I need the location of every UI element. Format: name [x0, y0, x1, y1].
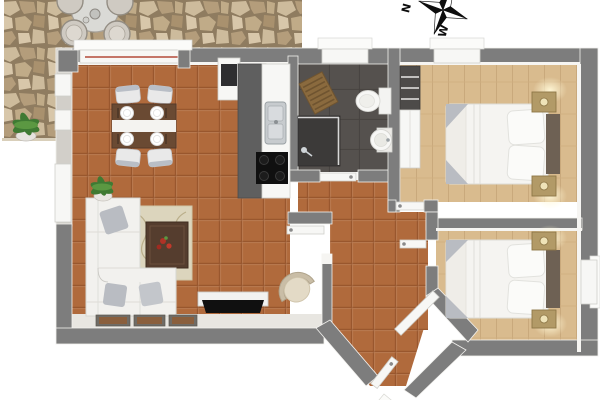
lamp [540, 237, 548, 245]
living-entry-wall [322, 254, 332, 330]
headboard [546, 250, 560, 308]
coffee-table [146, 222, 188, 268]
window-pillar-b [178, 50, 190, 68]
left-window-a [55, 74, 71, 96]
sofa-cushion [103, 283, 128, 308]
table-runner [112, 120, 176, 132]
lamp [540, 182, 548, 190]
bathroom-window-sill [318, 38, 372, 49]
floor-plan-svg: N W [0, 0, 600, 400]
living-bottom-wall [56, 328, 324, 344]
toilet [356, 88, 391, 114]
kitchen-sink [265, 102, 286, 144]
shower [298, 116, 340, 166]
bedroom1-south-wall-b [424, 200, 438, 212]
patio-kettle [90, 9, 100, 19]
right-wall [580, 48, 598, 356]
bedroom2-door [400, 240, 426, 248]
bedroom1-door [396, 202, 424, 210]
compass-north-label: N [399, 2, 414, 14]
bathroom-door [320, 173, 356, 181]
bedroom2-bottom-wall [452, 340, 598, 356]
compass-west-label: W [436, 24, 452, 39]
dining-window-sill [74, 40, 192, 50]
headboard [546, 114, 560, 174]
bedroom1-window [434, 49, 480, 63]
tv-sideboard [198, 292, 268, 313]
floor-plan-image: N W [0, 0, 600, 400]
innerface-right [577, 64, 581, 352]
sink-tap [386, 138, 390, 142]
pillow [507, 109, 545, 145]
bathroom-south-wall-b [358, 170, 392, 182]
cooktop [256, 152, 288, 184]
bedroom1-south-wall-a [388, 200, 396, 212]
faucet [274, 120, 278, 124]
hallway-pocket-floor [298, 180, 390, 214]
bedroom1-window-sill [430, 38, 484, 49]
tv-screen [202, 300, 264, 313]
compass: N W [399, 0, 481, 43]
left-window-b [55, 110, 71, 130]
bed-1 [446, 104, 560, 184]
sofa-cushion [138, 281, 163, 306]
hall-south-wall [288, 212, 332, 224]
corridor-east-wall-a [426, 212, 438, 240]
innerface-bed1-top [400, 62, 580, 65]
living-to-hall-door [287, 226, 324, 234]
wall-end-cap [322, 254, 332, 264]
window-pillar-a [58, 50, 78, 72]
left-wall [56, 224, 72, 344]
floor-mats [96, 315, 197, 326]
lamp [540, 315, 548, 323]
bed-2 [446, 240, 560, 318]
oven-appliance [221, 64, 237, 86]
bathroom-south-wall-a [288, 170, 320, 182]
patio-cup [83, 17, 89, 23]
left-window-c [55, 164, 71, 222]
bedroom2-window [581, 260, 597, 304]
bathroom-window [322, 49, 368, 63]
lamp [540, 98, 548, 106]
